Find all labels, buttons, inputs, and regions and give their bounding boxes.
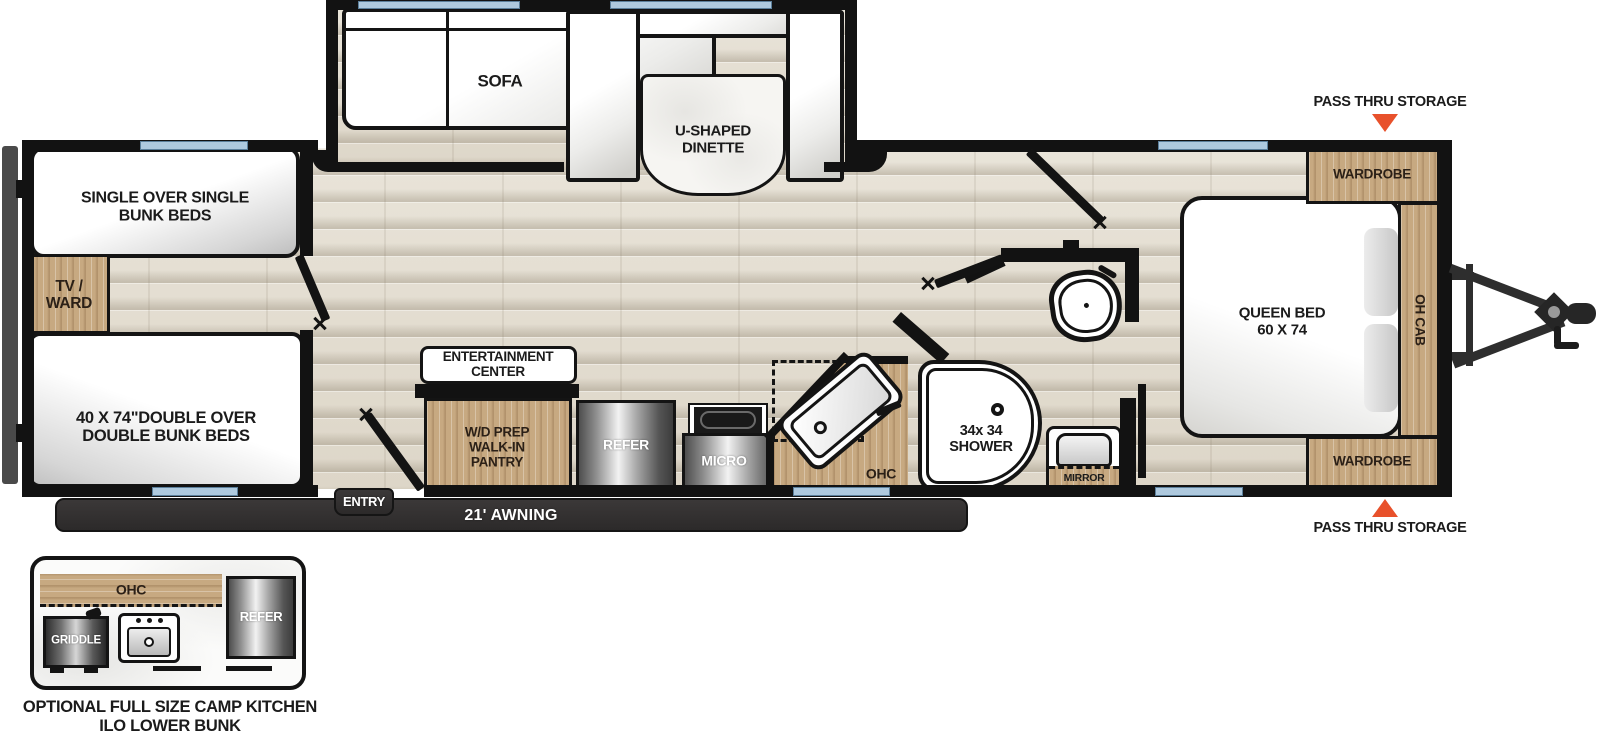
pass-thru-top-label: PASS THRU STORAGE (1313, 95, 1466, 111)
queen-bed-label: QUEEN BED 60 X 74 (1239, 306, 1325, 339)
bunkroom-door-latch-icon (312, 315, 328, 331)
pass-thru-bottom-arrow-icon (1372, 499, 1398, 517)
inset-griddle-foot-left (50, 667, 64, 673)
hitch-coupler-circle (1548, 306, 1560, 318)
window-top-wardrobe (1158, 141, 1268, 150)
oh-cab-label: OH CAB (1412, 294, 1427, 345)
hitch-ball-knob (1566, 303, 1596, 324)
inset-stove-knob-2 (147, 618, 152, 623)
bottom-wall-right (424, 485, 1452, 497)
left-wall (22, 140, 34, 497)
bath-wall-mirror-left (1120, 398, 1136, 493)
ohc-label: OHC (866, 466, 896, 481)
pass-thru-bottom-label: PASS THRU STORAGE (1313, 521, 1466, 537)
pass-thru-top-arrow-icon (1372, 114, 1398, 132)
dinette-right-bench (786, 10, 844, 182)
bath-wall-vertical (1125, 262, 1139, 322)
inset-caption: OPTIONAL FULL SIZE CAMP KITCHEN ILO LOWE… (0, 698, 340, 736)
mirror-label: MIRROR (1064, 473, 1105, 485)
single-bunk-label: SINGLE OVER SINGLE BUNK BEDS (81, 189, 249, 224)
inset-sink-drain (144, 637, 154, 647)
bedroom-door-latch-icon (1092, 214, 1108, 230)
inset-stove-knob-1 (136, 618, 141, 623)
inset-handle-left (153, 666, 201, 671)
refer-label: REFER (603, 437, 649, 452)
hitch-jack-handle-arm (1554, 342, 1579, 349)
tv-ward-label: TV / WARD (46, 278, 92, 312)
pillow-top (1364, 228, 1398, 316)
top-wall-right (857, 140, 1452, 152)
sofa-divider-line (446, 10, 449, 128)
wardrobe-top-label: WARDROBE (1333, 168, 1411, 183)
inset-griddle-label: GRIDDLE (51, 635, 101, 648)
slideout-bottom-wall-left (332, 162, 564, 172)
bath-wall-horizontal (1001, 248, 1139, 262)
sofa-label: SOFA (477, 73, 522, 92)
entry-door-latch-icon (358, 406, 374, 422)
inset-griddle-foot-right (84, 667, 98, 673)
slideout-wall-left (326, 0, 338, 164)
entry-label: ENTRY (343, 495, 385, 509)
right-wall (1440, 140, 1452, 497)
inset-stove-knob-3 (158, 618, 163, 623)
mirror-sink (1056, 433, 1112, 467)
shower-drain-knob (991, 403, 1004, 416)
pantry-label: W/D PREP WALK-IN PANTRY (465, 426, 529, 471)
window-bottom-bunk (152, 487, 238, 496)
window-top-bunk (140, 141, 248, 150)
pillow-bottom (1364, 324, 1398, 412)
counter-edge-left (766, 438, 774, 489)
bath-wall-mirror-right (1138, 384, 1146, 478)
window-bottom-bedroom (1155, 487, 1243, 496)
dinette-label: U-SHAPED DINETTE (675, 124, 751, 157)
inset-handle-right (226, 666, 272, 671)
slideout-bottom-wall-right (824, 162, 847, 172)
cooktop-grate (700, 411, 756, 429)
inset-refer-label: REFER (240, 610, 283, 624)
slideout-wall-right (845, 0, 857, 152)
window-bottom-kitchen (793, 487, 890, 496)
wardrobe-bottom-label: WARDROBE (1333, 455, 1411, 470)
entertainment-center-bar (415, 384, 579, 398)
window-slide-sofa (358, 1, 520, 9)
shower-label: 34x 34 SHOWER (949, 424, 1012, 456)
dinette-left-bench (566, 10, 640, 182)
inset-ohc-label: OHC (116, 582, 146, 597)
entertainment-center-label: ENTERTAINMENT CENTER (443, 350, 554, 380)
double-bunk-label: 40 X 74"DOUBLE OVER DOUBLE BUNK BEDS (76, 409, 256, 445)
bath-wall-tab (1063, 240, 1079, 250)
bathroom-door-latch-icon (920, 275, 936, 291)
awning-label: 21' AWNING (464, 507, 557, 525)
micro-label: MICRO (701, 453, 746, 468)
window-slide-dinette (610, 1, 772, 9)
toilet (1045, 265, 1126, 346)
bunkroom-lower-wall (300, 330, 313, 490)
bunkroom-divider-wall (300, 152, 313, 256)
rv-floorplan-diagram: SOFA U-SHAPED DINETTE SINGLE OVER SINGLE… (0, 0, 1600, 736)
